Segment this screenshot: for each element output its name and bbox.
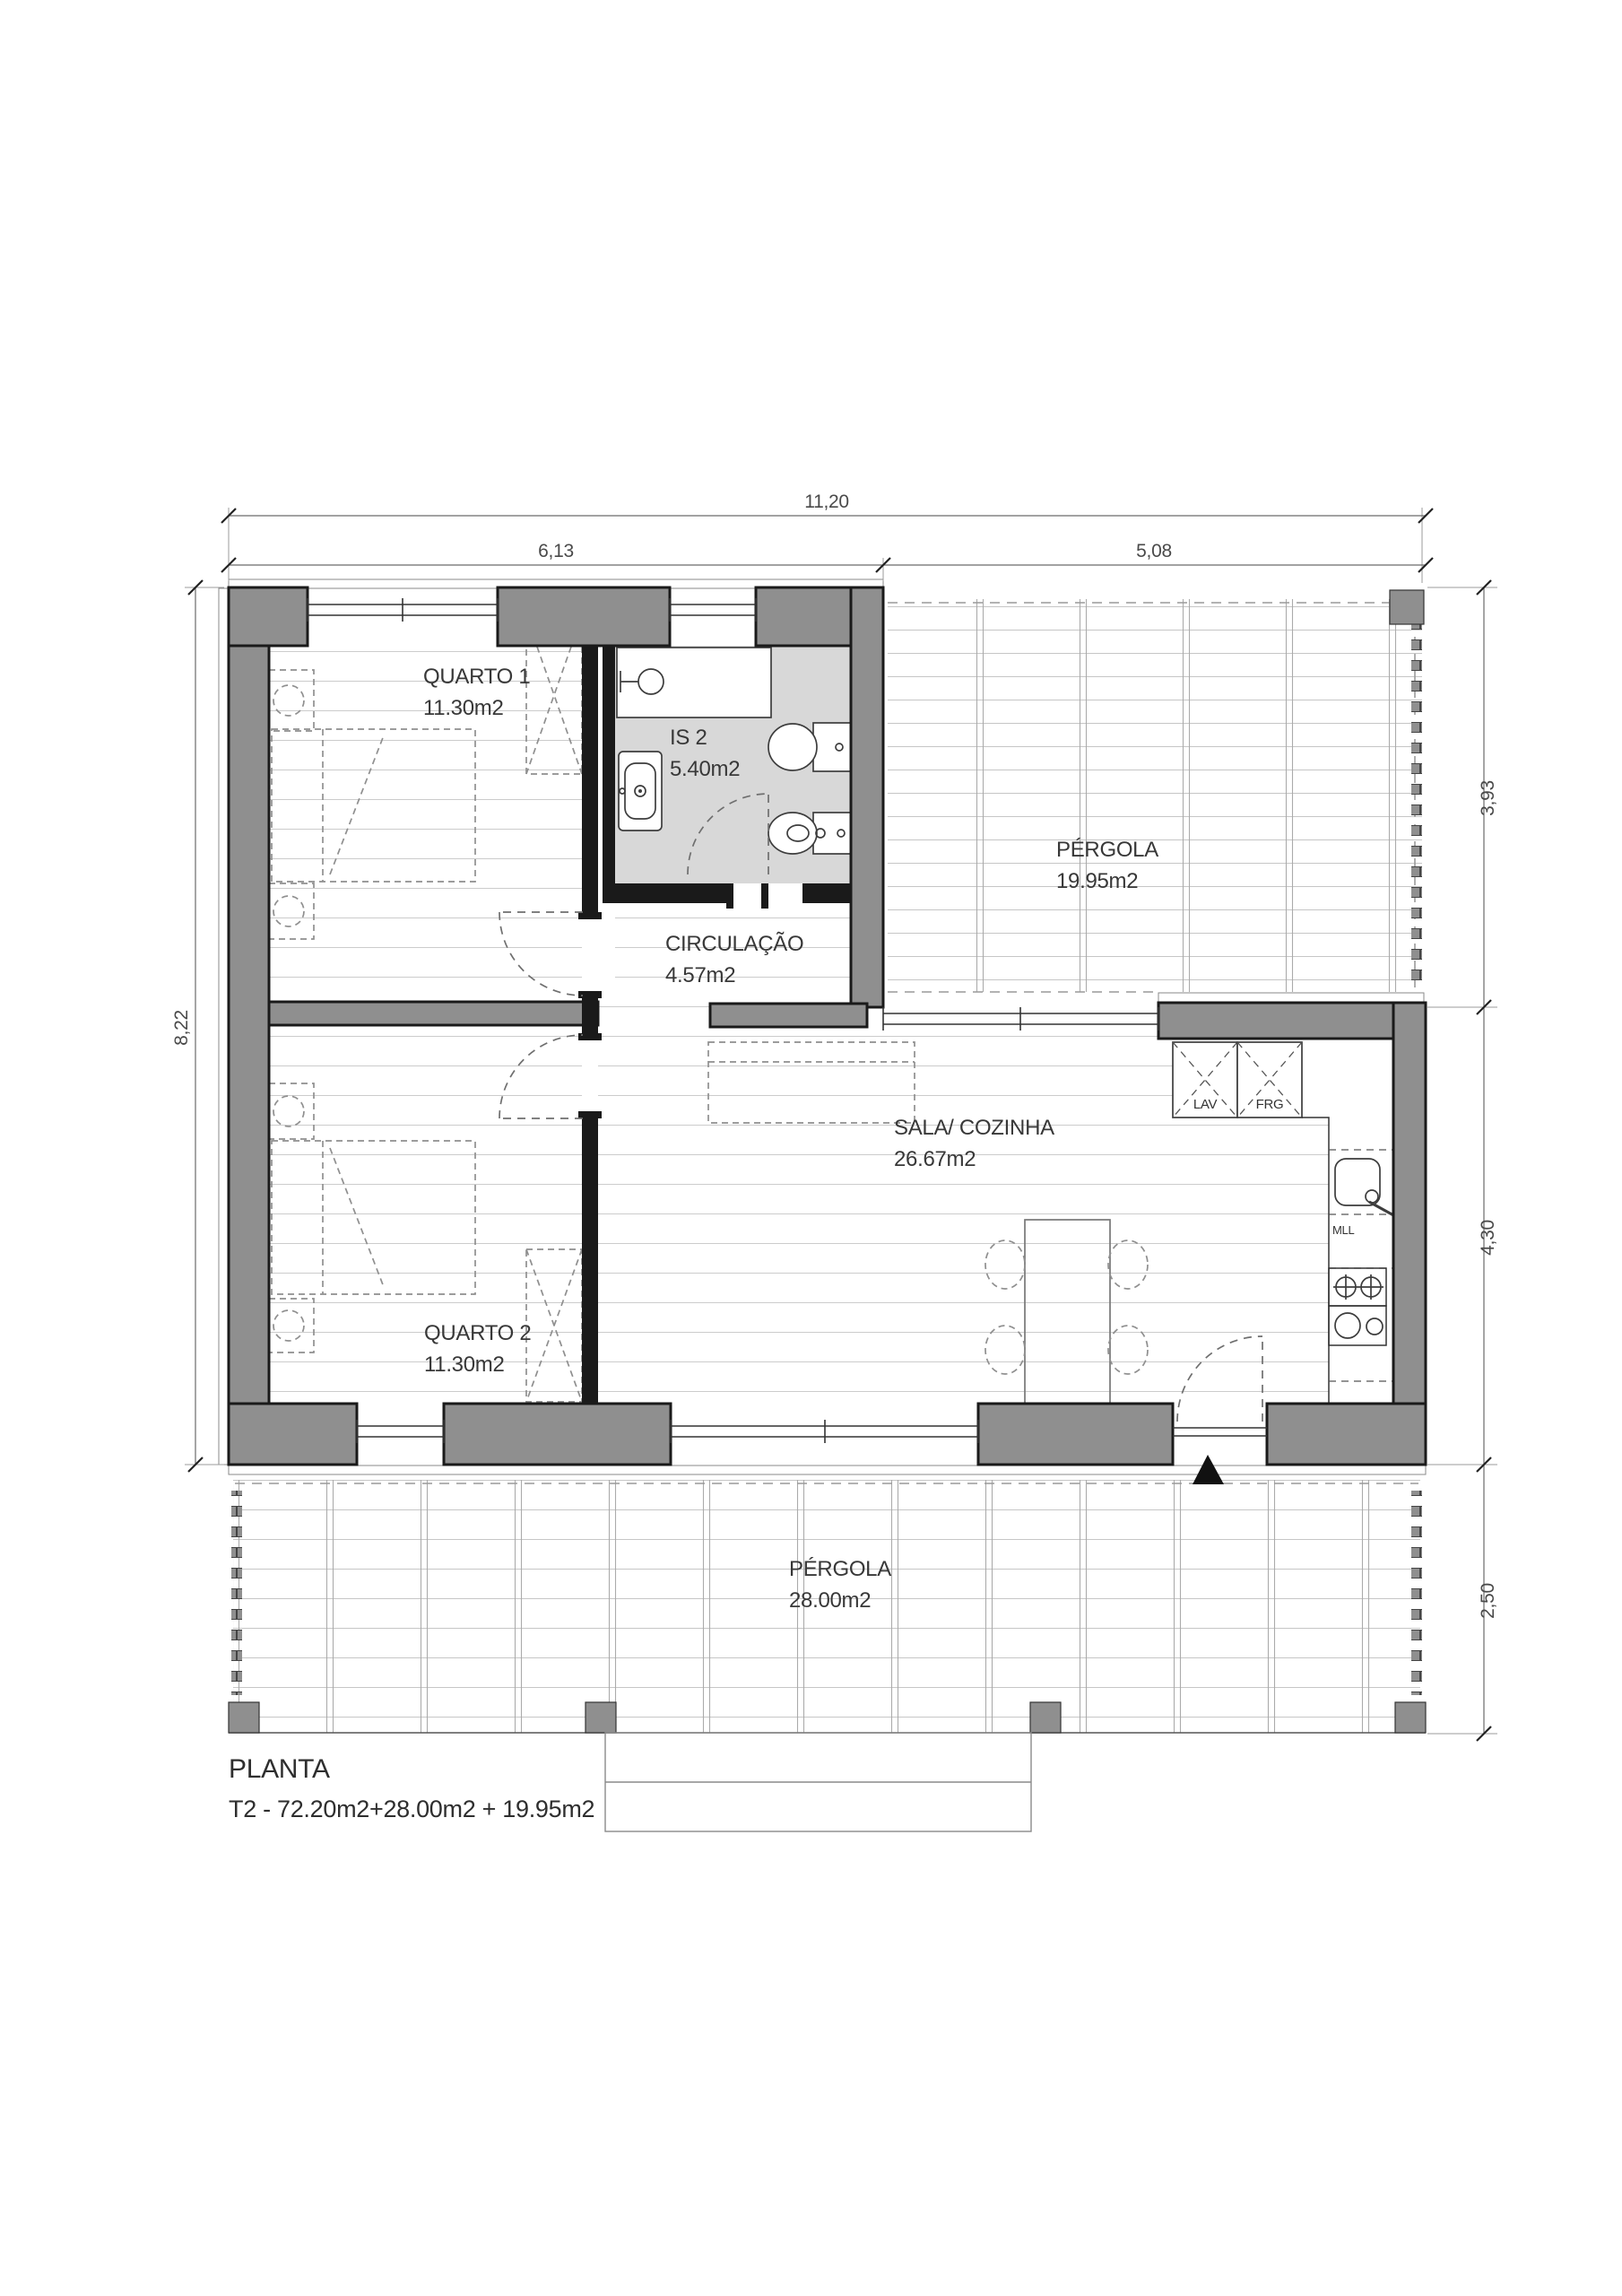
door-stop: [578, 912, 602, 919]
wall-circulacao-south: [710, 1004, 867, 1027]
floor-sala-north: [883, 1031, 1173, 1118]
label-pergola-ne: PÉRGOLA: [1056, 838, 1158, 862]
shower-tray: [617, 648, 771, 717]
pergola-ne-deck: [888, 599, 1422, 992]
floor-passage: [598, 1004, 710, 1027]
pergola-s-posts-right: [1411, 1491, 1422, 1695]
door-stop: [726, 883, 733, 909]
floor-plan-page: LAV FRG MLL: [0, 0, 1622, 2296]
dim-house-depth: 8,22: [171, 1010, 192, 1046]
area-is2: 5.40m2: [670, 757, 740, 781]
label-sala: SALA/ COZINHA: [894, 1116, 1054, 1140]
area-quarto1: 11.30m2: [423, 696, 504, 720]
wall-north-1: [229, 587, 308, 646]
entrance-threshold: [1173, 1428, 1267, 1436]
sliding-door-sala-north: [883, 1007, 1158, 1031]
plan-title: PLANTA: [229, 1754, 330, 1784]
wall-south-3: [978, 1404, 1173, 1465]
wall-sala-east: [1393, 1003, 1426, 1404]
window-quarto2: [357, 1420, 444, 1443]
wall-quarto2-east: [582, 1118, 598, 1404]
dim-pergola-ne-depth: 3,93: [1478, 780, 1498, 816]
pergola-s-post-4: [1395, 1702, 1426, 1733]
floor-sala-west: [598, 1027, 883, 1404]
wall-sala-north: [1158, 1003, 1393, 1039]
stove-lower: [1329, 1306, 1386, 1345]
wall-south-1: [229, 1404, 357, 1465]
wall-south-4: [1267, 1404, 1426, 1465]
area-pergola-s: 28.00m2: [789, 1588, 871, 1613]
door-stop: [761, 883, 768, 909]
window-quarto1: [308, 598, 498, 622]
wall-north-2: [498, 587, 670, 646]
dim-pergola-s-depth: 2,50: [1478, 1583, 1498, 1619]
wall-west: [229, 646, 269, 1404]
toilet-tank: [813, 723, 851, 771]
wall-bath-south-2: [802, 883, 851, 903]
pergola-s-post-2: [585, 1702, 616, 1733]
wall-bath-west: [603, 646, 615, 883]
wall-quartos-partition: [269, 1002, 598, 1025]
pergola-s-post-1: [229, 1702, 259, 1733]
burner-large-icon: [1335, 1313, 1360, 1338]
label-quarto2: QUARTO 2: [424, 1321, 531, 1345]
floor-plan-drawing: LAV FRG MLL: [0, 0, 1622, 2296]
dim-right-width: 5,08: [1136, 541, 1172, 561]
area-sala: 26.67m2: [894, 1147, 976, 1171]
floor-quarto2: [269, 1025, 582, 1404]
label-is2: IS 2: [670, 726, 707, 750]
label-quarto1: QUARTO 1: [423, 665, 530, 689]
dim-left-width: 6,13: [538, 541, 574, 561]
area-circulacao: 4.57m2: [665, 963, 735, 987]
fridge-label: FRG: [1256, 1097, 1284, 1112]
window-bathroom: [670, 598, 756, 622]
dim-sala-depth: 4,30: [1478, 1220, 1498, 1256]
wall-quarto1-east: [582, 646, 598, 912]
toilet-bowl: [768, 724, 817, 770]
label-circulacao: CIRCULAÇÃO: [665, 932, 803, 956]
wall-south-2: [444, 1404, 671, 1465]
area-pergola-ne: 19.95m2: [1056, 869, 1138, 893]
dishwasher-label: MLL: [1332, 1223, 1354, 1237]
wall-bath-south-1: [603, 883, 731, 903]
bidet-bowl: [768, 813, 817, 854]
title-block: PLANTA T2 - 72.20m2+28.00m2 + 19.95m2: [229, 1754, 594, 1822]
pergola-northeast: [888, 590, 1424, 992]
sliding-door-sala-south: [671, 1420, 978, 1443]
pergola-ne-corner-post: [1390, 590, 1424, 624]
area-quarto2: 11.30m2: [424, 1352, 505, 1377]
kitchen-sink: [1335, 1159, 1380, 1205]
pergola-south: [229, 1480, 1426, 1831]
washing-machine-label: LAV: [1193, 1097, 1218, 1112]
plan-composition: T2 - 72.20m2+28.00m2 + 19.95m2: [229, 1796, 594, 1822]
door-stop: [578, 991, 602, 998]
pergola-s-post-3: [1030, 1702, 1061, 1733]
pergola-s-posts-left: [231, 1491, 242, 1695]
label-pergola-s: PÉRGOLA: [789, 1557, 891, 1581]
dim-total-width: 11,20: [804, 491, 849, 512]
door-stop: [578, 1111, 602, 1118]
wall-east-of-left-block: [851, 587, 883, 1007]
burner-small-icon: [1366, 1318, 1383, 1335]
pergola-ne-posts: [1411, 622, 1422, 987]
